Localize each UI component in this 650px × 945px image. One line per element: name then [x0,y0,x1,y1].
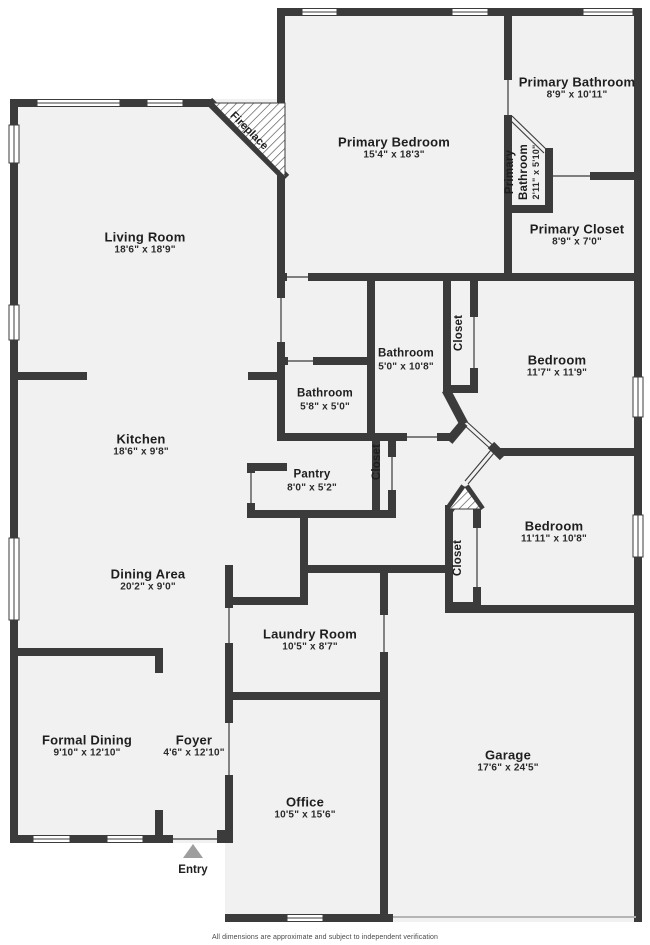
room-dimensions: 18'6" x 18'9" [105,245,186,257]
room-dimensions: 5'8" x 5'0" [297,401,353,413]
room-label: Pantry 8'0" x 5'2" [287,468,337,493]
room-name: Laundry Room [263,626,357,641]
room-name: Garage [477,747,538,762]
room-name: Bedroom [527,352,587,367]
room-name: Formal Dining [42,732,132,747]
room-dimensions: 10'5" x 15'6" [274,810,335,822]
room-name: Primary Closet [530,221,625,236]
room-dimensions: 15'4" x 18'3" [338,150,450,162]
room-name: Office [274,794,335,809]
room-label: Closet [453,315,467,351]
entry-label: Entry [178,864,207,876]
room-name: Bathroom [297,387,353,401]
room-name: Closet [453,315,467,351]
room-dimensions: 20'2" x 9'0" [111,582,186,594]
room-dimensions: 9'10" x 12'10" [42,748,132,760]
room-label: Kitchen 18'6" x 9'8" [113,431,169,458]
room-label: Bathroom 5'8" x 5'0" [297,387,353,412]
room-dimensions: 10'5" x 8'7" [263,642,357,654]
room-label: Closet [371,444,385,480]
room-name: Foyer [163,732,224,747]
label-layer: Fireplace Entry All dimensions are appro… [0,0,650,945]
room-name: Primary Bathroom [504,135,531,209]
room-label: Bedroom 11'11" x 10'8" [521,518,587,545]
room-name: Bedroom [521,518,587,533]
room-label: Garage 17'6" x 24'5" [477,747,538,774]
room-dimensions: 5'0" x 10'8" [378,361,434,373]
room-name: Kitchen [113,431,169,446]
room-name: Primary Bathroom [519,74,636,89]
room-name: Living Room [105,229,186,244]
room-dimensions: 4'6" x 12'10" [163,748,224,760]
room-name: Closet [452,540,466,576]
room-dimensions: 17'6" x 24'5" [477,763,538,775]
room-label: Formal Dining 9'10" x 12'10" [42,732,132,759]
room-name: Pantry [287,468,337,482]
room-label: Office 10'5" x 15'6" [274,794,335,821]
room-name: Primary Bedroom [338,134,450,149]
room-dimensions: 11'7" x 11'9" [527,368,587,380]
room-dimensions: 8'9" x 7'0" [530,237,625,249]
room-label: Primary Bedroom 15'4" x 18'3" [338,134,450,161]
room-label: Primary Bathroom 8'9" x 10'11" [519,74,636,101]
room-dimensions: 11'11" x 10'8" [521,534,587,546]
disclaimer-text: All dimensions are approximate and subje… [212,934,438,941]
room-label: Bathroom 5'0" x 10'8" [378,347,434,372]
room-name: Dining Area [111,566,186,581]
room-label: Primary Bathroom 2'11" x 5'10" [504,135,542,209]
floor-plan: Fireplace Entry All dimensions are appro… [0,0,650,945]
room-label: Closet [452,540,466,576]
room-dimensions: 2'11" x 5'10" [531,135,542,209]
room-label: Living Room 18'6" x 18'9" [105,229,186,256]
room-dimensions: 8'0" x 5'2" [287,482,337,494]
room-label: Bedroom 11'7" x 11'9" [527,352,587,379]
fireplace-label: Fireplace [228,110,271,153]
room-dimensions: 18'6" x 9'8" [113,447,169,459]
room-label: Foyer 4'6" x 12'10" [163,732,224,759]
room-label: Laundry Room 10'5" x 8'7" [263,626,357,653]
room-label: Dining Area 20'2" x 9'0" [111,566,186,593]
room-label: Primary Closet 8'9" x 7'0" [530,221,625,248]
room-dimensions: 8'9" x 10'11" [519,90,636,102]
room-name: Bathroom [378,347,434,361]
room-name: Closet [371,444,385,480]
